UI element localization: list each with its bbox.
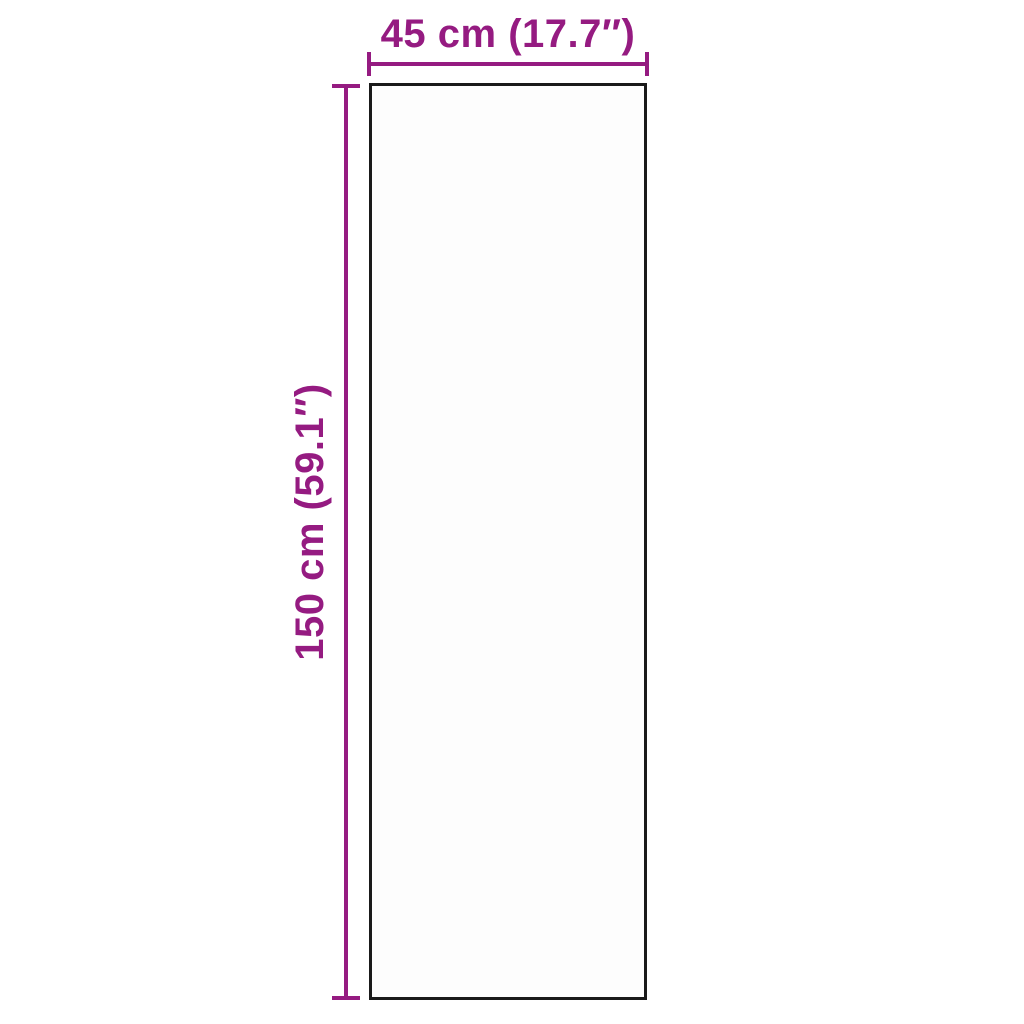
product-outline-rect	[369, 83, 647, 1000]
width-dimension-tick-left	[367, 52, 371, 76]
width-dimension-tick-right	[645, 52, 649, 76]
height-dimension-cap-top	[332, 84, 360, 88]
width-dimension-line	[369, 62, 647, 66]
width-dimension-label: 45 cm (17.7″)	[348, 14, 668, 54]
height-dimension-cap-bottom	[332, 996, 360, 1000]
height-dimension-label: 150 cm (59.1″)	[290, 322, 334, 722]
dimension-diagram: 45 cm (17.7″) 150 cm (59.1″)	[0, 0, 1024, 1024]
height-dimension-line	[344, 84, 348, 1000]
